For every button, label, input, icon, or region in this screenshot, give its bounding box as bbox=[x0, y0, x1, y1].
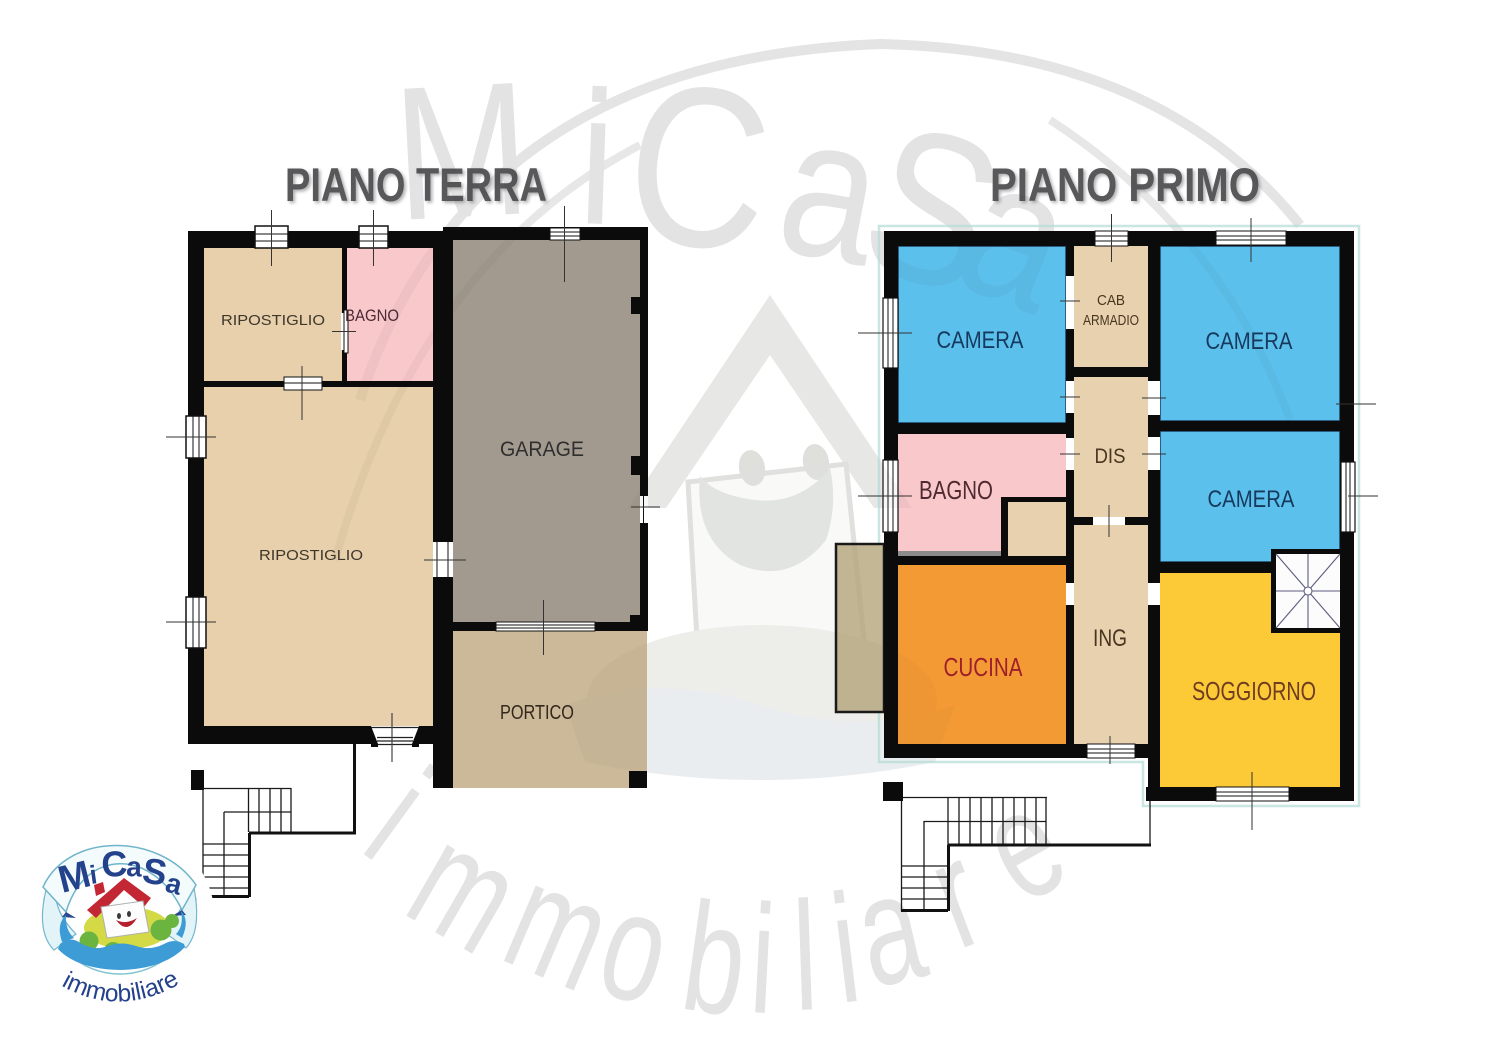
svg-text:ARMADIO: ARMADIO bbox=[1083, 312, 1139, 329]
svg-text:SOGGIORNO: SOGGIORNO bbox=[1192, 676, 1316, 706]
svg-text:DIS: DIS bbox=[1095, 445, 1126, 468]
svg-text:RIPOSTIGLIO: RIPOSTIGLIO bbox=[259, 548, 363, 564]
svg-text:CAMERA: CAMERA bbox=[1208, 486, 1295, 513]
svg-text:BAGNO: BAGNO bbox=[919, 475, 993, 505]
svg-text:PORTICO: PORTICO bbox=[500, 702, 574, 724]
svg-text:ING: ING bbox=[1093, 625, 1127, 652]
svg-text:CUCINA: CUCINA bbox=[944, 652, 1024, 682]
svg-text:RIPOSTIGLIO: RIPOSTIGLIO bbox=[221, 313, 325, 329]
svg-text:CAB: CAB bbox=[1097, 292, 1125, 309]
svg-text:a: a bbox=[126, 851, 143, 883]
svg-text:GARAGE: GARAGE bbox=[500, 437, 584, 461]
